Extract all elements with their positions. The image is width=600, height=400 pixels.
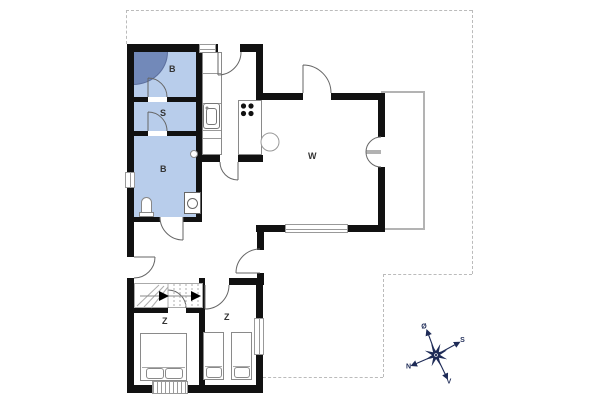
room-label-bathroom-main: B xyxy=(160,164,167,174)
door-arc xyxy=(148,78,167,97)
door-arc xyxy=(236,249,260,273)
double-door-arc xyxy=(366,137,381,152)
room-label-bathroom-top: B xyxy=(169,64,176,74)
entrance-door-arc xyxy=(134,257,155,278)
double-door-arc xyxy=(366,152,381,167)
stair-treads xyxy=(137,284,201,308)
door-arc xyxy=(205,285,229,309)
sink-tap xyxy=(206,107,209,110)
compass-east-label: Ø xyxy=(421,324,427,331)
room-label-living-room: W xyxy=(308,151,317,161)
room-label-utility: S xyxy=(160,108,166,118)
compass-north-label: N xyxy=(406,364,411,371)
room-label-bedroom-left: Z xyxy=(162,316,168,326)
round-table xyxy=(261,133,279,151)
floor-plan: B S B W Z Z N S Ø V xyxy=(0,0,600,400)
stair-direction-arrow xyxy=(191,291,201,301)
door-arc xyxy=(168,290,186,308)
room-label-bedroom-right: Z xyxy=(224,312,230,322)
plan-overlay xyxy=(0,0,600,400)
compass-west-label: V xyxy=(447,379,452,386)
door-arc xyxy=(303,65,331,93)
compass-rose: N S Ø V xyxy=(402,320,474,392)
stove xyxy=(241,103,254,116)
compass-south-label: S xyxy=(460,337,465,344)
door-arc xyxy=(220,162,238,180)
door-arc xyxy=(218,52,241,75)
door-arc xyxy=(160,217,183,240)
